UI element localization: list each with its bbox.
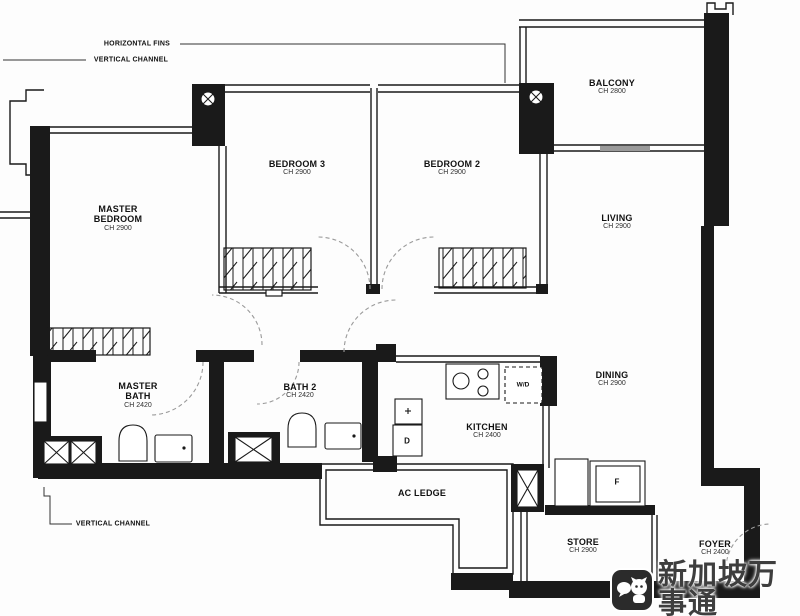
vent-opening <box>34 382 47 422</box>
ceiling-height: CH 2900 <box>269 169 325 177</box>
washer-dryer-label: W/D <box>517 382 530 389</box>
dryer-label: D <box>404 437 410 446</box>
ceiling-height: CH 2420 <box>118 402 157 410</box>
door-swing-arc <box>212 295 262 345</box>
room-label-bedroom3: BEDROOM 3 CH 2900 <box>269 159 325 177</box>
room-label-balcony: BALCONY CH 2800 <box>589 78 635 96</box>
watermark-logo-icon <box>612 570 652 610</box>
room-name: BALCONY <box>589 78 635 88</box>
ceiling-height: CH 2900 <box>567 547 599 555</box>
room-label-master-bedroom: MASTER BEDROOM CH 2900 <box>94 204 142 232</box>
ceiling-height: CH 2900 <box>596 380 629 388</box>
wardrobe-hatch <box>48 248 526 355</box>
sink-icon <box>155 435 192 462</box>
door-swing-arc <box>150 362 203 415</box>
room-label-bath2: BATH 2 CH 2420 <box>283 382 316 400</box>
annotation-vertical-channel-top: VERTICAL CHANNEL <box>94 57 168 64</box>
room-label-living: LIVING CH 2900 <box>601 213 632 231</box>
watermark-text: 新加坡万事通 <box>658 561 800 616</box>
ceiling-height: CH 2400 <box>466 432 507 440</box>
ceiling-height: CH 2900 <box>424 169 480 177</box>
toilet-icon <box>119 425 147 461</box>
room-name: LIVING <box>601 213 632 223</box>
room-label-bedroom2: BEDROOM 2 CH 2900 <box>424 159 480 177</box>
room-name: BEDROOM 3 <box>269 159 325 169</box>
ceiling-height: CH 2800 <box>589 88 635 96</box>
fridge-label: F <box>615 478 620 487</box>
room-label-dining: DINING CH 2900 <box>596 370 629 388</box>
ceiling-height: CH 2900 <box>601 223 632 231</box>
sink-icon <box>325 423 361 449</box>
annotation-vertical-channel-bottom: VERTICAL CHANNEL <box>76 521 150 528</box>
ceiling-height: CH 2420 <box>283 392 316 400</box>
room-label-store: STORE CH 2900 <box>567 537 599 555</box>
room-label-ac-ledge: AC LEDGE <box>398 488 446 498</box>
room-name: KITCHEN <box>466 422 507 432</box>
room-name: STORE <box>567 537 599 547</box>
room-name: BATH 2 <box>283 382 316 392</box>
door-swing-arc <box>382 237 434 289</box>
room-name: FOYER <box>699 539 731 549</box>
sliding-door-panel <box>600 146 650 151</box>
room-name: DINING <box>596 370 629 380</box>
room-name: MASTER BEDROOM <box>94 204 142 225</box>
walls <box>30 13 760 598</box>
column-x-icon <box>517 470 538 507</box>
floor-plan-canvas: MASTER BEDROOM CH 2900 BEDROOM 3 CH 2900… <box>0 0 800 616</box>
watermark: 新加坡万事通 <box>612 561 800 616</box>
annotation-horizontal-fins: HORIZONTAL FINS <box>104 41 170 48</box>
room-name: BEDROOM 2 <box>424 159 480 169</box>
room-label-kitchen: KITCHEN CH 2400 <box>466 422 507 440</box>
room-name: MASTER BATH <box>118 381 157 402</box>
hob-icon <box>446 364 499 399</box>
shower-x-icon <box>235 437 272 462</box>
door-swing-arc <box>318 237 370 289</box>
cabinet-box <box>555 459 588 506</box>
room-label-master-bath: MASTER BATH CH 2420 <box>118 381 157 409</box>
room-label-foyer: FOYER CH 2400 <box>699 539 731 557</box>
ceiling-height: CH 2900 <box>94 225 142 233</box>
ceiling-height: CH 2400 <box>699 549 731 557</box>
room-name: AC LEDGE <box>398 488 446 498</box>
toilet-icon <box>288 413 316 447</box>
